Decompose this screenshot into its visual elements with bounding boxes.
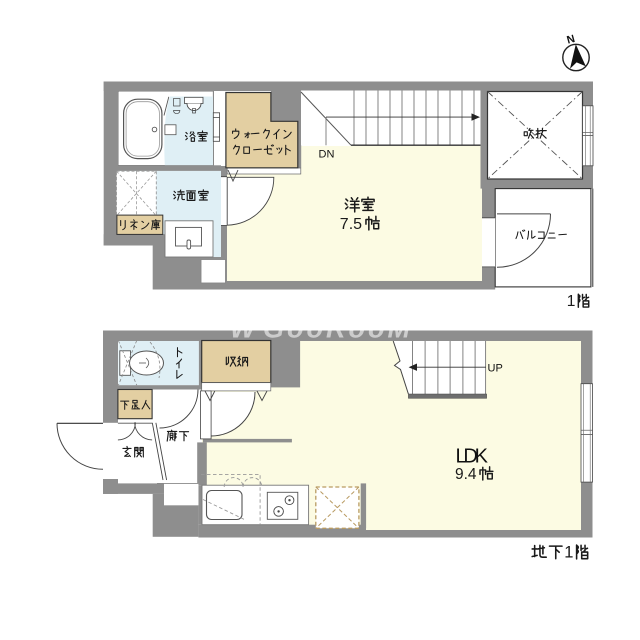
svg-text:7.5: 7.5 <box>340 216 362 233</box>
svg-text:LDK: LDK <box>456 446 489 468</box>
svg-text:W: W <box>230 314 258 344</box>
svg-text:9.4: 9.4 <box>455 466 477 483</box>
svg-text:DN: DN <box>319 149 335 161</box>
svg-text:1: 1 <box>564 544 573 562</box>
svg-text:UP: UP <box>488 363 503 375</box>
svg-text:1: 1 <box>567 293 576 310</box>
svg-text:GooRooM: GooRooM <box>263 314 413 344</box>
